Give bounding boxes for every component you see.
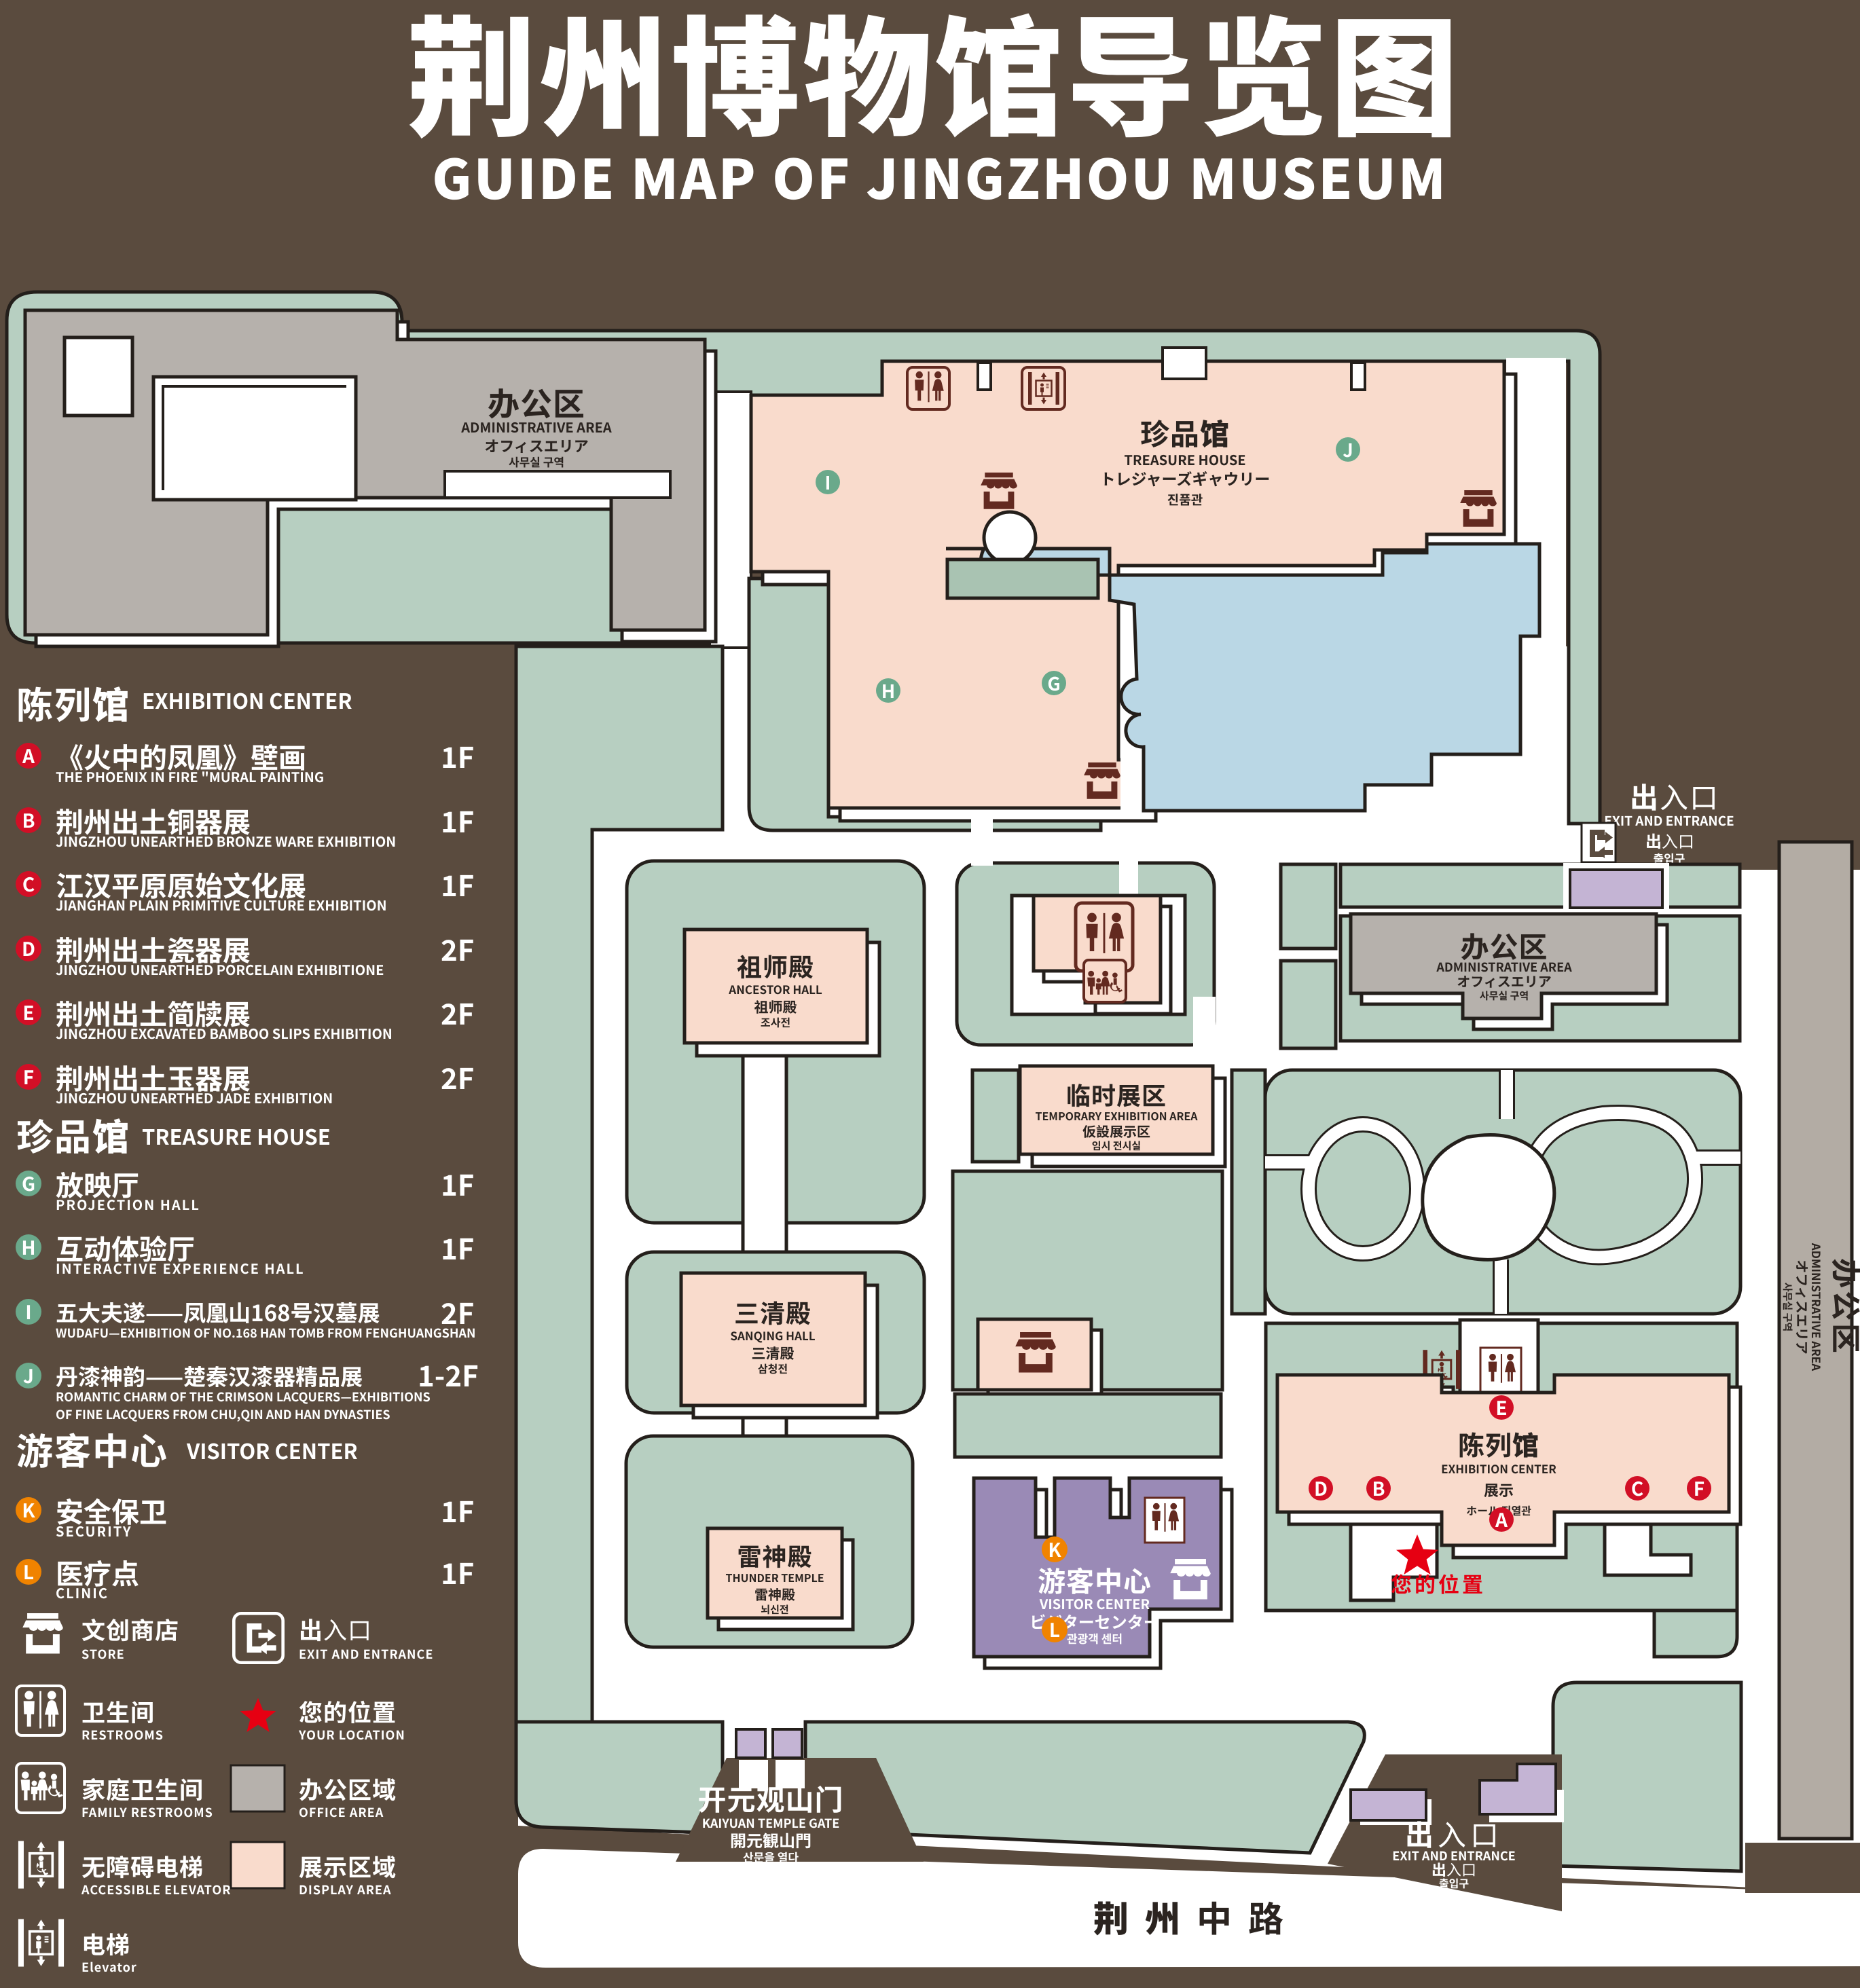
svg-text:진품관: 진품관 bbox=[1167, 490, 1203, 509]
svg-text:トレジャーズギャウリー: トレジャーズギャウリー bbox=[1100, 466, 1271, 490]
svg-text:F: F bbox=[1694, 1475, 1704, 1502]
svg-text:WUDAFU—EXHIBITION OF NO.168 HA: WUDAFU—EXHIBITION OF NO.168 HAN TOMB FRO… bbox=[56, 1324, 476, 1342]
svg-text:TREASURE HOUSE: TREASURE HOUSE bbox=[142, 1120, 331, 1151]
svg-text:J: J bbox=[23, 1362, 34, 1389]
svg-text:三清殿: 三清殿 bbox=[734, 1293, 812, 1330]
svg-text:G: G bbox=[22, 1170, 35, 1197]
svg-text:A: A bbox=[22, 742, 35, 769]
svg-text:EXIT AND ENTRANCE: EXIT AND ENTRANCE bbox=[1604, 811, 1734, 830]
svg-text:H: H bbox=[21, 1234, 35, 1261]
svg-text:JINGZHOU UNEARTHED JADE EXHIBI: JINGZHOU UNEARTHED JADE EXHIBITION bbox=[56, 1088, 333, 1107]
svg-text:Elevator: Elevator bbox=[81, 1958, 137, 1976]
svg-text:游客中心: 游客中心 bbox=[16, 1422, 168, 1475]
svg-text:출입구: 출입구 bbox=[1439, 1875, 1469, 1891]
svg-text:THE PHOENIX IN FIRE "MURAL PAI: THE PHOENIX IN FIRE "MURAL PAINTING bbox=[56, 767, 324, 786]
svg-text:JINGZHOU UNEARTHED BRONZE WARE: JINGZHOU UNEARTHED BRONZE WARE EXHIBITIO… bbox=[56, 831, 396, 851]
svg-text:陈列馆: 陈列馆 bbox=[16, 676, 130, 729]
svg-text:仮設展示区: 仮設展示区 bbox=[1082, 1121, 1150, 1141]
svg-text:조사전: 조사전 bbox=[761, 1014, 790, 1030]
svg-text:2F: 2F bbox=[441, 1056, 474, 1098]
svg-text:1F: 1F bbox=[441, 1490, 474, 1531]
svg-text:SANQING HALL: SANQING HALL bbox=[730, 1327, 815, 1344]
svg-text:2F: 2F bbox=[441, 992, 474, 1033]
svg-text:丹漆神韵——楚秦汉漆器精品展: 丹漆神韵——楚秦汉漆器精品展 bbox=[56, 1359, 363, 1392]
svg-text:FAMILY RESTROOMS: FAMILY RESTROOMS bbox=[81, 1803, 213, 1821]
svg-text:1F: 1F bbox=[441, 800, 474, 841]
svg-text:出入口: 出入口 bbox=[1630, 775, 1719, 817]
svg-text:展示区域: 展示区域 bbox=[299, 1849, 397, 1883]
svg-text:OFFICE AREA: OFFICE AREA bbox=[299, 1803, 384, 1821]
svg-text:JINGZHOU EXCAVATED BAMBOO SLIP: JINGZHOU EXCAVATED BAMBOO SLIPS EXHIBITI… bbox=[56, 1023, 393, 1043]
svg-text:RESTROOMS: RESTROOMS bbox=[81, 1726, 164, 1744]
svg-text:사무실 구역: 사무실 구역 bbox=[1781, 1283, 1795, 1331]
svg-text:电梯: 电梯 bbox=[81, 1926, 130, 1961]
svg-text:PROJECTION HALL: PROJECTION HALL bbox=[56, 1194, 200, 1214]
svg-text:您的位置: 您的位置 bbox=[1391, 1568, 1486, 1598]
svg-text:雷神殿: 雷神殿 bbox=[737, 1538, 812, 1573]
svg-text:INTERACTIVE EXPERIENCE HALL: INTERACTIVE EXPERIENCE HALL bbox=[56, 1258, 305, 1278]
svg-text:C: C bbox=[1631, 1475, 1643, 1502]
svg-text:无障碍电梯: 无障碍电梯 bbox=[81, 1849, 204, 1883]
svg-text:뇌신전: 뇌신전 bbox=[761, 1602, 788, 1617]
svg-text:1F: 1F bbox=[441, 864, 474, 905]
svg-text:SECURITY: SECURITY bbox=[56, 1521, 132, 1541]
svg-text:オフィスエリア: オフィスエリア bbox=[1793, 1259, 1812, 1355]
svg-text:出入口: 出入口 bbox=[299, 1612, 372, 1646]
svg-text:I: I bbox=[25, 1298, 31, 1325]
svg-text:GUIDE MAP OF JINGZHOU MUSEUM: GUIDE MAP OF JINGZHOU MUSEUM bbox=[432, 136, 1448, 215]
svg-text:家庭卫生间: 家庭卫生间 bbox=[81, 1771, 204, 1806]
svg-text:H: H bbox=[881, 677, 895, 703]
svg-text:CLINIC: CLINIC bbox=[56, 1583, 109, 1602]
svg-text:E: E bbox=[22, 999, 34, 1026]
svg-text:开元观山门: 开元观山门 bbox=[697, 1778, 843, 1819]
svg-text:JINGZHOU UNEARTHED PORCELAIN E: JINGZHOU UNEARTHED PORCELAIN EXHIBITIONE bbox=[56, 959, 384, 979]
svg-text:K: K bbox=[1048, 1536, 1061, 1563]
svg-text:EXHIBITION CENTER: EXHIBITION CENTER bbox=[1441, 1460, 1556, 1477]
svg-text:D: D bbox=[1314, 1475, 1328, 1502]
svg-text:I: I bbox=[825, 468, 831, 495]
svg-text:雷神殿: 雷神殿 bbox=[754, 1584, 795, 1604]
svg-text:STORE: STORE bbox=[81, 1645, 125, 1663]
svg-text:文创商店: 文创商店 bbox=[81, 1612, 179, 1646]
svg-text:ANCESTOR HALL: ANCESTOR HALL bbox=[728, 980, 822, 997]
svg-text:您的位置: 您的位置 bbox=[299, 1694, 397, 1729]
svg-text:珍品馆: 珍品馆 bbox=[1140, 411, 1230, 454]
svg-text:B: B bbox=[22, 807, 35, 834]
svg-text:A: A bbox=[1495, 1506, 1508, 1533]
svg-text:B: B bbox=[1372, 1475, 1385, 1502]
svg-text:OF FINE LACQUERS FROM CHU,QIN: OF FINE LACQUERS FROM CHU,QIN AND HAN DY… bbox=[56, 1405, 390, 1423]
svg-text:관광객 센터: 관광객 센터 bbox=[1067, 1630, 1123, 1646]
svg-text:陈列馆: 陈列馆 bbox=[1458, 1425, 1539, 1463]
svg-text:임시 전시실: 임시 전시실 bbox=[1092, 1139, 1141, 1153]
svg-text:K: K bbox=[22, 1496, 35, 1524]
svg-text:DISPLAY AREA: DISPLAY AREA bbox=[299, 1881, 392, 1898]
svg-text:F: F bbox=[23, 1063, 34, 1090]
svg-text:THUNDER TEMPLE: THUNDER TEMPLE bbox=[725, 1569, 824, 1585]
svg-text:G: G bbox=[1047, 669, 1060, 696]
svg-text:삼청전: 삼청전 bbox=[758, 1360, 788, 1376]
svg-text:五大夫遂——凤凰山168号汉墓展: 五大夫遂——凤凰山168号汉墓展 bbox=[56, 1295, 380, 1328]
svg-text:ROMANTIC CHARM OF THE CRIMSON: ROMANTIC CHARM OF THE CRIMSON LACQUERS—E… bbox=[56, 1388, 431, 1405]
svg-text:J: J bbox=[1343, 436, 1353, 462]
svg-text:EXHIBITION CENTER: EXHIBITION CENTER bbox=[142, 684, 352, 715]
svg-text:EXIT AND ENTRANCE: EXIT AND ENTRANCE bbox=[299, 1645, 433, 1663]
svg-text:YOUR LOCATION: YOUR LOCATION bbox=[298, 1726, 405, 1744]
svg-text:ACCESSIBLE ELEVATOR: ACCESSIBLE ELEVATOR bbox=[81, 1881, 232, 1898]
svg-text:展示: 展示 bbox=[1484, 1479, 1514, 1501]
svg-text:L: L bbox=[1049, 1616, 1060, 1643]
svg-text:L: L bbox=[23, 1558, 34, 1585]
svg-text:出入口: 出入口 bbox=[1645, 828, 1694, 852]
svg-text:1F: 1F bbox=[441, 1551, 474, 1593]
svg-text:荆州中路: 荆州中路 bbox=[1093, 1891, 1300, 1942]
svg-text:ADMINISTRATIVE AREA: ADMINISTRATIVE AREA bbox=[460, 417, 612, 437]
svg-text:VISITOR CENTER: VISITOR CENTER bbox=[186, 1435, 358, 1465]
svg-text:JIANGHAN PLAIN PRIMITIVE CULTU: JIANGHAN PLAIN PRIMITIVE CULTURE EXHIBIT… bbox=[56, 895, 387, 915]
svg-text:1F: 1F bbox=[441, 1227, 474, 1268]
svg-text:1F: 1F bbox=[441, 1163, 474, 1204]
svg-text:E: E bbox=[1495, 1394, 1507, 1421]
svg-text:C: C bbox=[22, 870, 35, 898]
svg-text:オフィスエリア: オフィスエリア bbox=[1457, 971, 1552, 991]
svg-text:사무실 구역: 사무실 구역 bbox=[509, 453, 564, 470]
svg-text:办公区: 办公区 bbox=[1826, 1258, 1860, 1356]
svg-text:사무실 구역: 사무실 구역 bbox=[1480, 989, 1529, 1003]
svg-text:珍品馆: 珍品馆 bbox=[16, 1107, 130, 1161]
svg-text:2F: 2F bbox=[441, 928, 474, 970]
svg-text:卫生间: 卫生间 bbox=[81, 1694, 155, 1729]
svg-text:祖师殿: 祖师殿 bbox=[737, 947, 814, 984]
svg-text:D: D bbox=[22, 935, 35, 962]
svg-text:办公区域: 办公区域 bbox=[299, 1771, 397, 1806]
svg-text:1F: 1F bbox=[441, 735, 474, 777]
svg-text:산문을 열다: 산문을 열다 bbox=[743, 1848, 799, 1865]
